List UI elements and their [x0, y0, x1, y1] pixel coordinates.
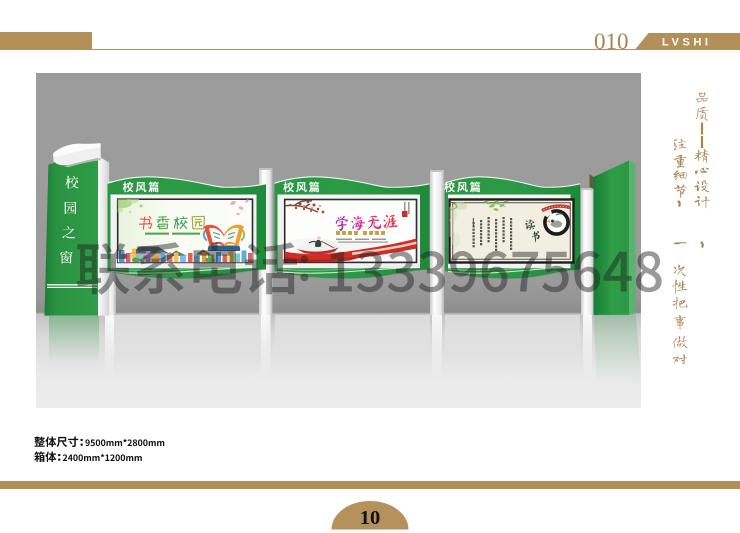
svg-text:10: 10: [360, 507, 381, 529]
